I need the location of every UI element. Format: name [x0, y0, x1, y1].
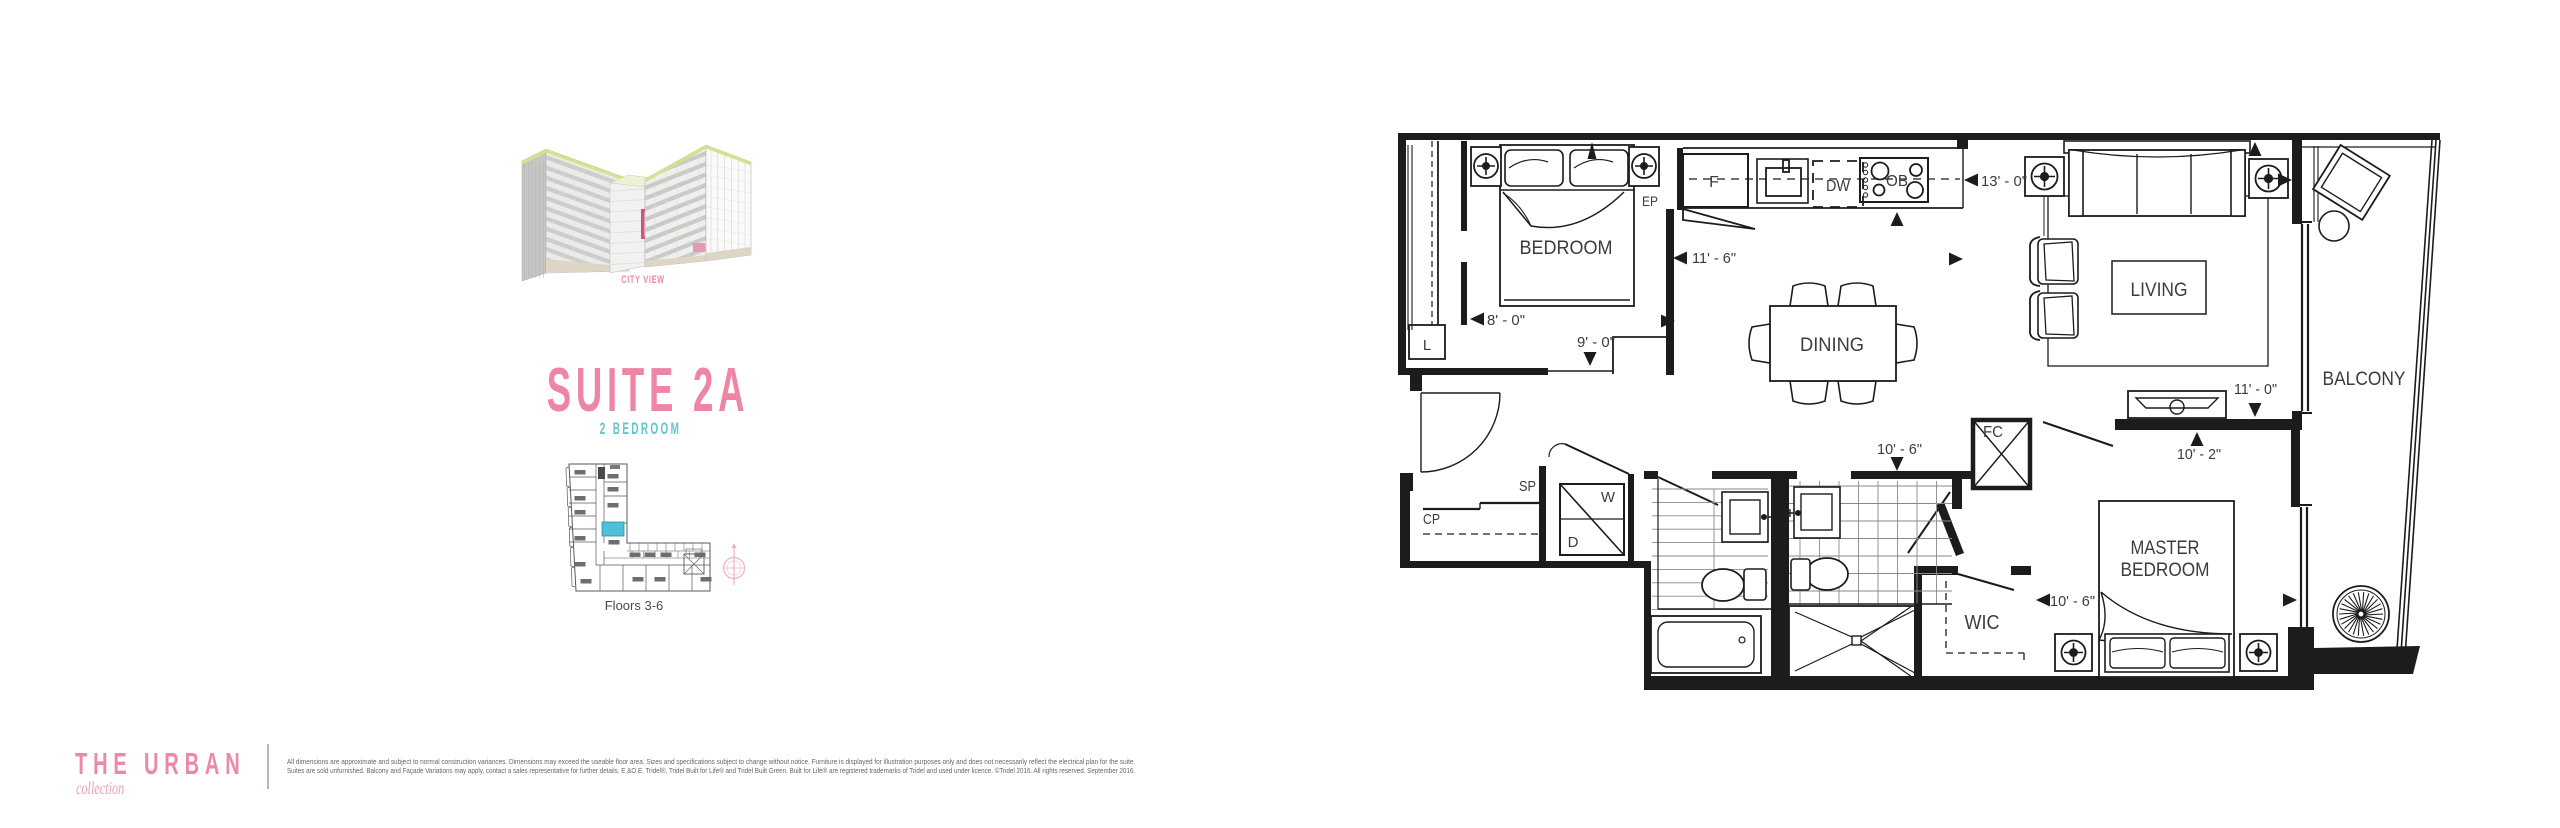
svg-text:11' - 6": 11' - 6"	[1692, 250, 1736, 267]
svg-text:13' - 0": 13' - 0"	[1981, 173, 2027, 190]
svg-text:10' - 6": 10' - 6"	[1877, 441, 1922, 458]
svg-text:11' - 0": 11' - 0"	[2234, 381, 2277, 398]
svg-text:BEDROOM: BEDROOM	[2121, 559, 2210, 581]
svg-text:SP: SP	[1519, 478, 1536, 495]
svg-text:LIVING: LIVING	[2131, 279, 2188, 301]
svg-text:D: D	[1568, 534, 1579, 551]
svg-text:L: L	[1423, 337, 1431, 354]
svg-text:8' - 0": 8' - 0"	[1487, 312, 1525, 329]
svg-text:EP: EP	[1642, 193, 1658, 209]
svg-text:F: F	[1709, 174, 1719, 191]
svg-text:BEDROOM: BEDROOM	[1520, 237, 1613, 259]
svg-text:W: W	[1601, 489, 1616, 506]
svg-text:CP: CP	[1423, 511, 1440, 528]
svg-text:DINING: DINING	[1800, 334, 1864, 356]
svg-text:10' - 6": 10' - 6"	[2050, 593, 2095, 610]
svg-text:WIC: WIC	[1965, 612, 2000, 634]
svg-text:10' - 2": 10' - 2"	[2177, 446, 2221, 463]
svg-text:MASTER: MASTER	[2131, 537, 2200, 559]
svg-text:BALCONY: BALCONY	[2323, 369, 2406, 390]
svg-text:OB: OB	[1886, 173, 1908, 190]
svg-text:FC: FC	[1983, 424, 2003, 441]
svg-text:DW: DW	[1826, 178, 1851, 195]
svg-text:9' - 0": 9' - 0"	[1577, 334, 1615, 351]
